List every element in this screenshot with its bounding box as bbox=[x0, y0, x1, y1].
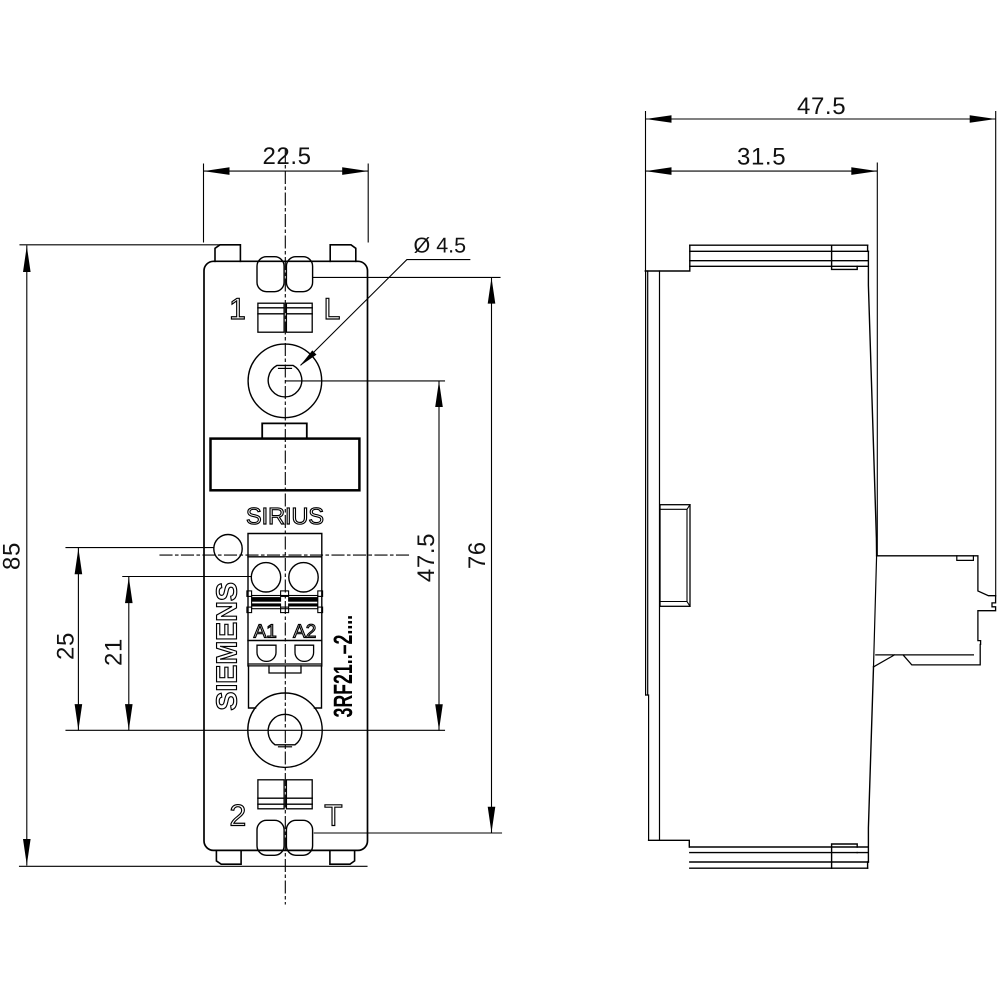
svg-text:76: 76 bbox=[464, 541, 491, 569]
svg-text:21: 21 bbox=[101, 638, 128, 666]
svg-text:L: L bbox=[324, 293, 341, 326]
svg-text:A2: A2 bbox=[293, 621, 316, 642]
svg-text:47.5: 47.5 bbox=[413, 533, 440, 582]
svg-text:22.5: 22.5 bbox=[262, 143, 311, 170]
svg-text:2: 2 bbox=[229, 800, 246, 833]
svg-text:3RF21..–2....: 3RF21..–2.... bbox=[328, 615, 358, 718]
svg-text:Ø 4.5: Ø 4.5 bbox=[414, 234, 467, 258]
svg-text:25: 25 bbox=[53, 632, 80, 660]
svg-text:SIEMENS: SIEMENS bbox=[211, 582, 243, 711]
svg-text:A1: A1 bbox=[254, 621, 277, 642]
svg-text:31.5: 31.5 bbox=[737, 144, 786, 171]
svg-text:1: 1 bbox=[229, 293, 246, 326]
svg-text:SIRIUS: SIRIUS bbox=[246, 503, 324, 529]
svg-text:85: 85 bbox=[0, 542, 26, 570]
svg-text:47.5: 47.5 bbox=[797, 93, 846, 120]
svg-text:T: T bbox=[324, 800, 342, 833]
